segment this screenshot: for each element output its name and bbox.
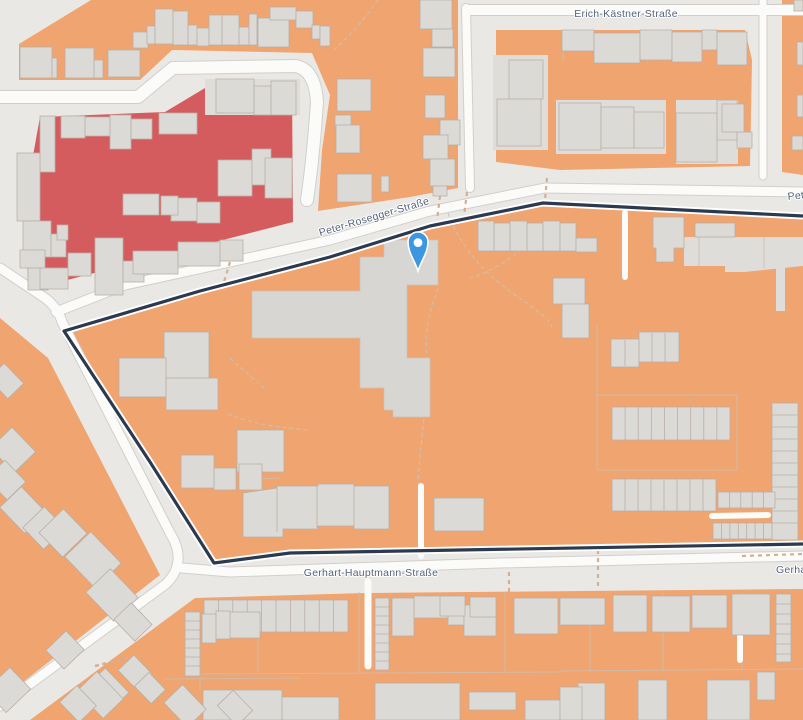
svg-text:Gerhart-Hauptmann-Straße: Gerhart-Hauptmann-Straße <box>304 567 438 579</box>
svg-text:Erich-Kästner-Straße: Erich-Kästner-Straße <box>574 8 678 20</box>
svg-text:Gerhart-: Gerhart- <box>776 564 803 576</box>
